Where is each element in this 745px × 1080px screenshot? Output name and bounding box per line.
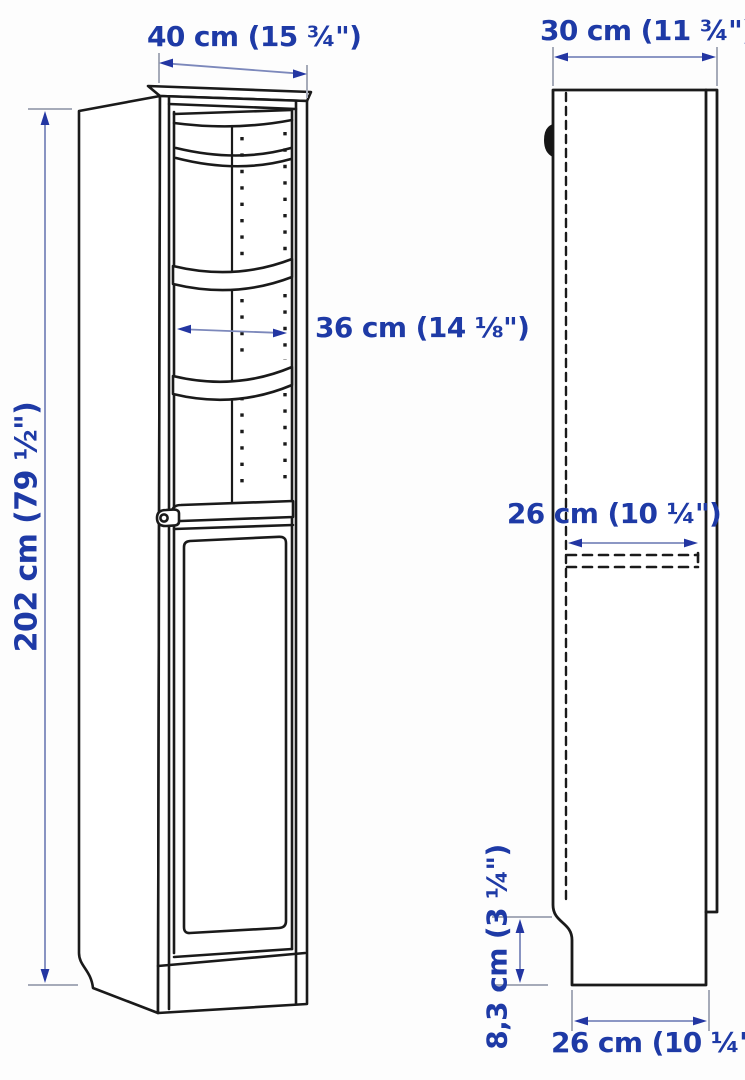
base-depth-label: 26 cm (10 ¼") [551, 1028, 739, 1059]
top-depth-label: 30 cm (11 ¾") [540, 16, 730, 47]
door-divide-rail [172, 501, 293, 521]
side-view [544, 90, 717, 985]
cabinet-line-drawing [0, 0, 745, 1080]
front-width-label: 40 cm (15 ¾") [147, 22, 331, 53]
side-outline [553, 90, 717, 985]
front-width-line [172, 64, 294, 73]
side-panel [79, 96, 160, 1013]
knob-profile [544, 124, 553, 157]
plinth-height-label: 8,3 cm (3 ¼") [483, 844, 514, 1049]
interior-width-label: 36 cm (14 ⅛") [315, 313, 529, 344]
front-view [79, 86, 311, 1013]
height-label: 202 cm (79 ½") [11, 402, 44, 652]
dimension-diagram: 40 cm (15 ¾") 30 cm (11 ¾") 202 cm (79 ½… [0, 0, 745, 1080]
shelf-depth-label: 26 cm (10 ¼") [494, 499, 734, 530]
